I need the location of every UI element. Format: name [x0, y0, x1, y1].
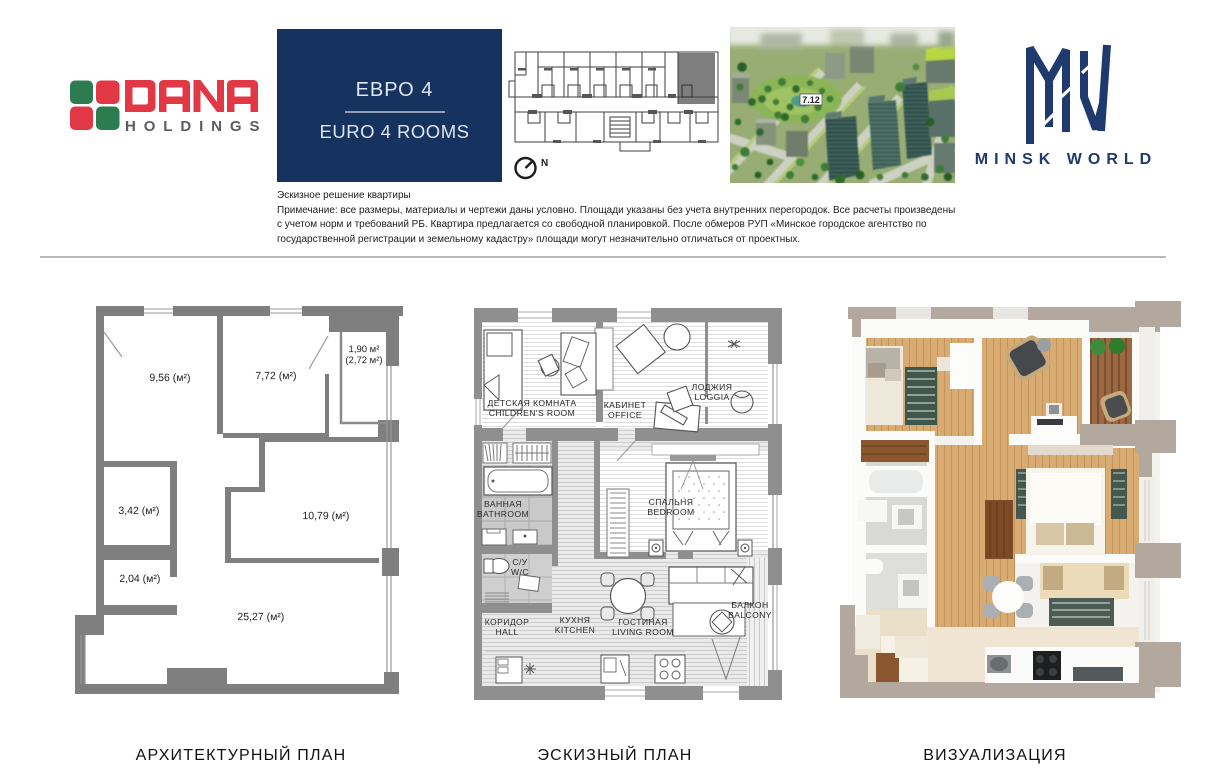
svg-text:9,56 (м²): 9,56 (м²)	[149, 372, 190, 384]
svg-text:2,04 (м²): 2,04 (м²)	[119, 573, 160, 585]
svg-text:ДЕТСКАЯ КОМНАТА: ДЕТСКАЯ КОМНАТА	[487, 398, 576, 408]
svg-text:7,72 (м²): 7,72 (м²)	[255, 370, 296, 382]
svg-text:OFFICE: OFFICE	[608, 410, 642, 420]
svg-text:КАБИНЕТ: КАБИНЕТ	[604, 400, 647, 410]
svg-text:3,42 (м²): 3,42 (м²)	[118, 505, 159, 517]
svg-text:ВАННАЯ: ВАННАЯ	[484, 499, 522, 509]
svg-text:ЛОДЖИЯ: ЛОДЖИЯ	[692, 382, 733, 392]
svg-text:W/C: W/C	[511, 567, 529, 577]
svg-text:БАЛКОН: БАЛКОН	[731, 600, 768, 610]
svg-text:СПАЛЬНЯ: СПАЛЬНЯ	[649, 497, 694, 507]
svg-text:ГОСТИНАЯ: ГОСТИНАЯ	[618, 617, 668, 627]
svg-text:CHILDREN'S ROOM: CHILDREN'S ROOM	[489, 408, 575, 418]
svg-text:25,27 (м²): 25,27 (м²)	[237, 611, 284, 623]
svg-text:KITCHEN: KITCHEN	[555, 625, 596, 635]
svg-text:BATHROOM: BATHROOM	[477, 509, 529, 519]
svg-text:N: N	[541, 158, 548, 169]
svg-text:LIVING ROOM: LIVING ROOM	[612, 627, 674, 637]
svg-text:BALCONY: BALCONY	[728, 610, 772, 620]
svg-text:7.12: 7.12	[802, 95, 820, 105]
svg-text:10,79 (м²): 10,79 (м²)	[302, 510, 349, 522]
svg-text:HALL: HALL	[495, 627, 518, 637]
svg-text:BEDROOM: BEDROOM	[647, 507, 694, 517]
svg-text:HOLDINGS: HOLDINGS	[125, 118, 267, 135]
svg-text:(2,72 м²): (2,72 м²)	[345, 355, 382, 366]
svg-text:КОРИДОР: КОРИДОР	[485, 617, 530, 627]
svg-text:LOGGIA: LOGGIA	[694, 392, 729, 402]
svg-text:1,90 м²: 1,90 м²	[349, 344, 380, 355]
svg-text:КУХНЯ: КУХНЯ	[560, 615, 591, 625]
svg-text:С/У: С/У	[512, 557, 527, 567]
svg-text:MINSK WORLD: MINSK WORLD	[975, 151, 1157, 168]
